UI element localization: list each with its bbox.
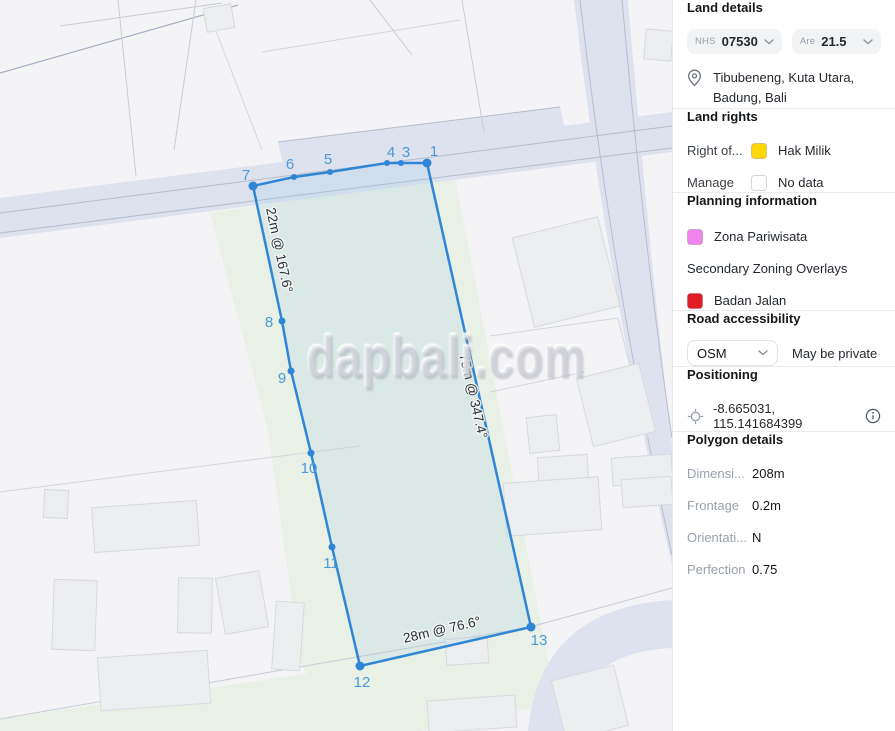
positioning-section: Positioning -8.665031, 115.141684399 — [673, 366, 895, 431]
perfection-row: Perfection 0.75 — [687, 561, 881, 579]
building-footprint — [97, 650, 210, 711]
vertex-dot-10[interactable] — [308, 450, 315, 457]
vertex-dot-6[interactable] — [291, 174, 297, 180]
right-of-row: Right of... Hak Milik — [687, 142, 881, 160]
dimension-label: Dimensi... — [687, 465, 752, 483]
frontage-value: 0.2m — [752, 497, 781, 515]
land-rights-title: Land rights — [687, 109, 881, 124]
perfection-label: Perfection — [687, 561, 752, 579]
manage-label: Manage — [687, 174, 751, 192]
vertex-label-11: 11 — [323, 555, 339, 572]
road-source-value: OSM — [697, 346, 727, 361]
land-details-section: Land details NHS 07530 Are 21.5 T — [673, 0, 895, 108]
badan-jalan-swatch — [687, 293, 703, 309]
info-icon[interactable] — [865, 408, 881, 424]
parcel-line — [490, 372, 584, 392]
land-rights-section: Land rights Right of... Hak Milik Manage… — [673, 108, 895, 192]
planning-title: Planning information — [687, 193, 881, 208]
building-footprint — [427, 695, 517, 731]
nhs-key-label: NHS — [695, 36, 716, 47]
building-footprint — [43, 489, 68, 518]
right-of-value: Hak Milik — [778, 142, 831, 160]
no-data-swatch — [751, 175, 767, 191]
building-footprint — [644, 29, 672, 61]
road-source-row: OSM May be private — [687, 340, 881, 366]
are-key-label: Are — [800, 36, 815, 47]
map-layers: 1 3 4 5 6 7 8 9 10 11 12 13 22m @ 167.6°… — [0, 0, 672, 731]
building-footprint — [215, 571, 268, 635]
building-footprint — [272, 601, 305, 671]
vertex-label-4: 4 — [387, 144, 395, 161]
positioning-title: Positioning — [687, 367, 881, 382]
polygon-details-section: Polygon details Dimensi... 208m Frontage… — [673, 431, 895, 579]
chevron-down-icon — [758, 350, 768, 356]
planning-section: Planning information Zona Pariwisata Sec… — [673, 192, 895, 310]
building-footprint — [203, 4, 235, 32]
vertex-label-6: 6 — [286, 156, 294, 173]
location-pin-icon — [687, 69, 702, 87]
vertex-label-5: 5 — [324, 151, 332, 168]
vertex-dot-12[interactable] — [356, 662, 365, 671]
building-footprint — [621, 476, 672, 507]
chevron-down-icon — [863, 39, 873, 45]
coordinates-row: -8.665031, 115.141684399 — [687, 401, 881, 431]
road-source-select[interactable]: OSM — [687, 340, 778, 366]
vertex-dot-11[interactable] — [329, 544, 336, 551]
right-of-label: Right of... — [687, 142, 751, 160]
vertex-dot-8[interactable] — [279, 318, 286, 325]
building-footprint — [503, 477, 601, 536]
vertex-dot-13[interactable] — [527, 623, 536, 632]
land-id-pills: NHS 07530 Are 21.5 — [687, 29, 881, 54]
details-sidebar: Land details NHS 07530 Are 21.5 T — [672, 0, 895, 731]
parcel-line — [462, 0, 484, 132]
location-row: Tibubeneng, Kuta Utara, Badung, Bali — [687, 68, 881, 108]
nhs-dropdown[interactable]: NHS 07530 — [687, 29, 782, 54]
vertex-label-12: 12 — [354, 674, 371, 691]
chevron-down-icon — [764, 39, 774, 45]
orientation-value: N — [752, 529, 761, 547]
coordinates-value: -8.665031, 115.141684399 — [713, 401, 865, 431]
vertex-dot-5[interactable] — [327, 169, 333, 175]
frontage-row: Frontage 0.2m — [687, 497, 881, 515]
frontage-label: Frontage — [687, 497, 752, 515]
parcel-line — [60, 3, 222, 26]
hak-milik-swatch — [751, 143, 767, 159]
vertex-label-7: 7 — [242, 167, 250, 184]
building-footprint — [178, 578, 213, 634]
map-canvas[interactable]: 1 3 4 5 6 7 8 9 10 11 12 13 22m @ 167.6°… — [0, 0, 672, 731]
parcel-line — [370, 0, 412, 55]
nhs-value: 07530 — [722, 34, 758, 49]
parcel-line — [118, 0, 136, 176]
orientation-label: Orientati... — [687, 529, 752, 547]
parcel-line — [209, 13, 262, 150]
zona-pariwisata-label: Zona Pariwisata — [714, 228, 807, 246]
orientation-row: Orientati... N — [687, 529, 881, 547]
badan-jalan-label: Badan Jalan — [714, 292, 786, 310]
building-footprint — [512, 217, 620, 328]
building-footprint — [52, 579, 97, 650]
land-details-title: Land details — [687, 0, 881, 15]
manage-value: No data — [778, 174, 824, 192]
road-accessibility-section: Road accessibility OSM May be private — [673, 310, 895, 366]
dimension-row: Dimensi... 208m — [687, 465, 881, 483]
overlay-row: Badan Jalan — [687, 292, 881, 310]
perfection-value: 0.75 — [752, 561, 777, 579]
vertex-label-9: 9 — [278, 370, 286, 387]
parcel-line — [0, 5, 238, 73]
are-dropdown[interactable]: Are 21.5 — [792, 29, 881, 54]
vertex-label-13: 13 — [531, 632, 548, 649]
app-window: 1 3 4 5 6 7 8 9 10 11 12 13 22m @ 167.6°… — [0, 0, 895, 731]
vertex-label-10: 10 — [301, 460, 318, 477]
zoning-row: Zona Pariwisata — [687, 228, 881, 246]
zona-pariwisata-swatch — [687, 229, 703, 245]
vertex-label-1: 1 — [430, 143, 438, 160]
location-text: Tibubeneng, Kuta Utara, Badung, Bali — [713, 68, 873, 108]
road-accessibility-title: Road accessibility — [687, 311, 881, 326]
are-value: 21.5 — [821, 34, 846, 49]
manage-row: Manage No data — [687, 174, 881, 192]
crosshair-icon — [687, 408, 704, 425]
parcel-line — [262, 20, 460, 52]
road-privacy-note: May be private — [792, 346, 877, 361]
polygon-details-title: Polygon details — [687, 432, 881, 447]
vertex-dot-9[interactable] — [288, 368, 295, 375]
secondary-zoning-title: Secondary Zoning Overlays — [687, 260, 881, 278]
vertex-label-3: 3 — [402, 144, 410, 161]
vertex-label-8: 8 — [265, 314, 273, 331]
building-footprint — [92, 500, 200, 552]
building-footprint — [526, 415, 560, 454]
dimension-value: 208m — [752, 465, 785, 483]
